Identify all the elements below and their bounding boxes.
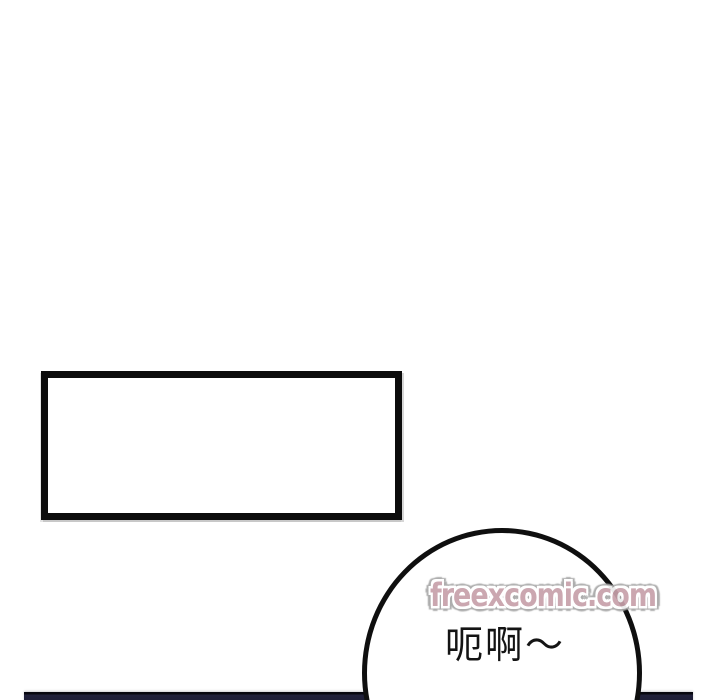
comic-page: 呃啊～ freexcomic.com [0, 0, 720, 700]
speech-bubble-text: 呃啊～ [445, 626, 565, 664]
watermark-text: freexcomic.com [430, 578, 656, 615]
empty-caption-box [41, 371, 402, 520]
